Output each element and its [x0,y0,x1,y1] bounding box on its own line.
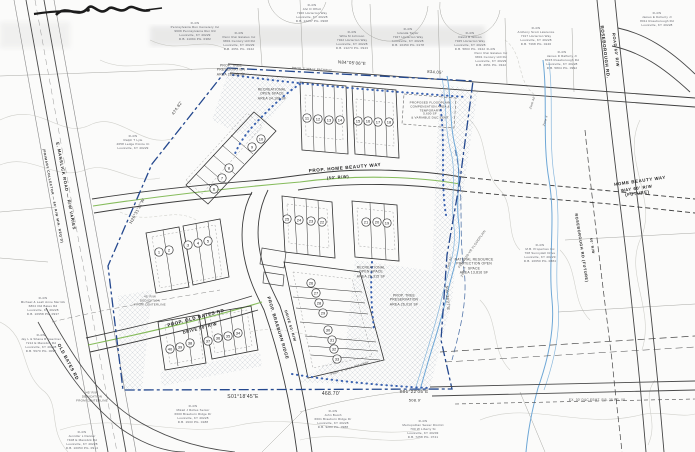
lot-marker: 27 [312,289,320,297]
lot-marker: 26 [307,279,315,287]
lot-marker: 1 [155,248,163,256]
road-prop-old-bates [52,290,258,352]
site-plan-sheet: 1234567891011121314151617181920212223242… [0,0,695,452]
lot-marker: 7 [218,174,226,182]
svg-text:29: 29 [321,311,326,316]
lot-marker: 11 [303,114,311,122]
lot-marker: 19 [383,219,391,227]
lot-marker: 30 [324,326,332,334]
lot-marker: 2 [165,246,173,254]
road-home-beauty-way [92,170,695,213]
lot-marker: 15 [354,117,362,125]
lot-marker: 31 [328,336,336,344]
road-manslick [14,0,136,452]
lot-marker: 38 [186,339,194,347]
lot-marker: 5 [204,237,212,245]
svg-text:35: 35 [226,334,231,339]
lot-marker: 21 [362,218,370,226]
svg-text:20: 20 [375,220,380,225]
lot-marker: 16 [364,117,372,125]
svg-text:21: 21 [364,220,369,225]
svg-text:10: 10 [259,137,264,142]
svg-text:31: 31 [330,338,335,343]
lot-marker: 32 [330,345,338,353]
lot-marker: 8 [225,164,233,172]
lot-marker: 34 [234,329,242,337]
lot-marker: 22 [318,218,326,226]
lot-marker: 3 [184,241,192,249]
plat-drawing: 1234567891011121314151617181920212223242… [0,0,695,452]
lot-marker: 17 [374,118,382,126]
southeast-easement-lines [430,336,695,404]
svg-text:33: 33 [335,357,340,362]
signature-mark [34,7,162,15]
svg-text:24: 24 [297,218,302,223]
lot-marker: 9 [248,143,256,151]
svg-text:26: 26 [309,281,314,286]
svg-text:30: 30 [326,328,331,333]
lot-marker: 20 [373,218,381,226]
svg-text:38: 38 [188,341,193,346]
svg-text:28: 28 [317,301,322,306]
lot-marker: 35 [224,332,232,340]
svg-text:12: 12 [316,117,321,122]
svg-text:39: 39 [178,345,183,350]
svg-text:19: 19 [385,221,390,226]
svg-text:40: 40 [168,347,173,352]
svg-text:27: 27 [314,291,319,296]
lot-marker: 23 [307,217,315,225]
hatch-areas [118,70,478,390]
scan-artifacts [0,22,485,48]
lot-marker: 10 [257,135,265,143]
svg-text:37: 37 [206,339,211,344]
lot-marker: 25 [283,215,291,223]
lot-marker: 13 [325,116,333,124]
lot-marker: 28 [315,299,323,307]
lot-marker: 36 [214,334,222,342]
svg-text:18: 18 [387,120,392,125]
lot-marker: 24 [295,216,303,224]
lot-marker: 6 [210,185,218,193]
svg-text:17: 17 [376,120,381,125]
svg-text:34: 34 [236,331,241,336]
svg-text:13: 13 [327,118,332,123]
svg-text:16: 16 [366,119,371,124]
lot-marker: 14 [336,116,344,124]
lot-marker: 33 [333,355,341,363]
lot-marker: 40 [166,345,174,353]
lot-marker: 12 [314,115,322,123]
road-roseborough [585,0,695,452]
svg-text:15: 15 [356,119,361,124]
contour-lines [0,40,695,452]
svg-text:36: 36 [216,336,221,341]
lot-marker: 39 [176,343,184,351]
svg-text:25: 25 [285,217,290,222]
lot-marker: 18 [385,118,393,126]
svg-text:32: 32 [332,347,337,352]
svg-text:22: 22 [320,220,325,225]
svg-text:14: 14 [338,118,343,123]
lot-marker: 4 [194,239,202,247]
lot-marker: 37 [204,337,212,345]
lot-marker: 29 [319,309,327,317]
svg-text:23: 23 [309,219,314,224]
